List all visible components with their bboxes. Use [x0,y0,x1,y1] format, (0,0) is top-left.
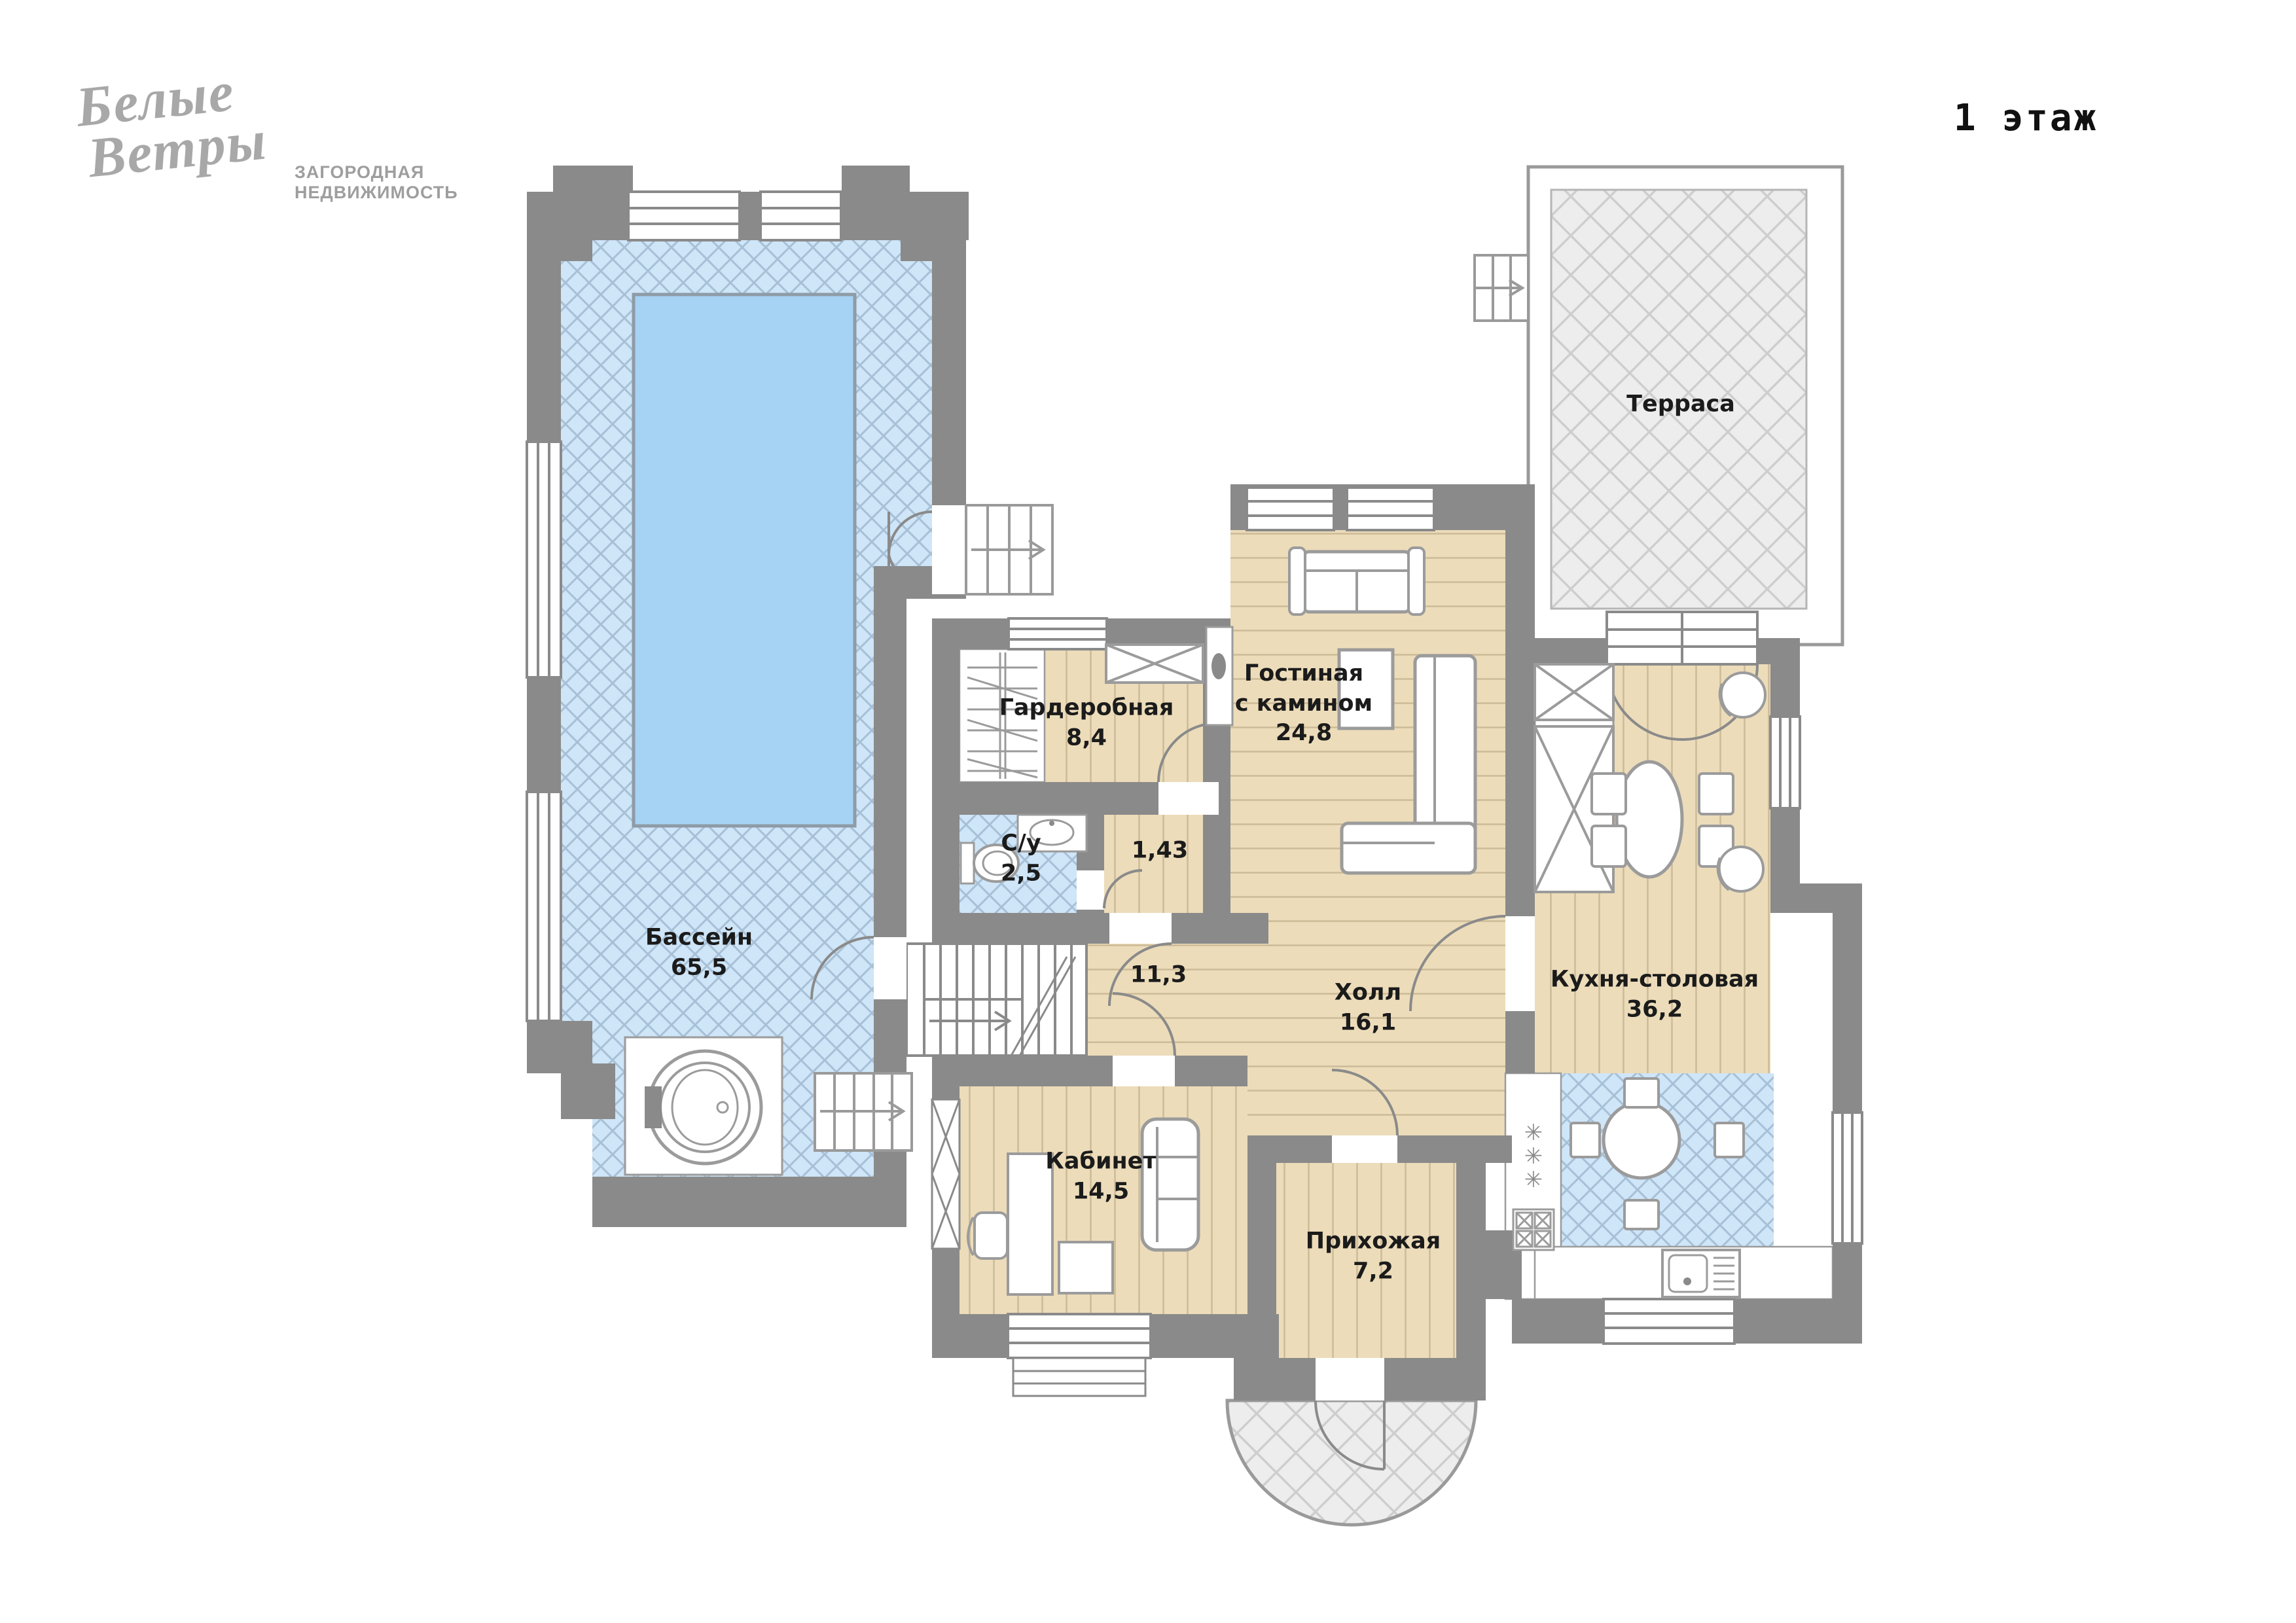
room-label-pool: Бассейн 65,5 [645,923,753,983]
room-label-living: Гостиная с камином 24,8 [1235,659,1372,749]
room-label-hall: Холл 16,1 [1335,978,1401,1038]
side-table-icon [1059,1242,1113,1293]
living-window-1 [1247,488,1334,530]
kitchen-south-window [1604,1299,1734,1344]
fireplace-icon [1206,627,1232,725]
logo-subtitle-line2: НЕДВИЖИМОСТЬ [295,183,458,203]
pool-top-window-1 [628,192,740,240]
kitchen-sink-icon [1662,1250,1740,1297]
room-label-study: Кабинет 14,5 [1045,1147,1156,1207]
room-label-niche: 1,43 [1132,836,1188,866]
kitchen-east-strip [1774,913,1833,1234]
room-label-stair-corridor: 11,3 [1130,960,1187,990]
logo-script: Белые Ветры [74,63,270,185]
logo: Белые Ветры ЗАГОРОДНАЯ НЕДВИЖИМОСТЬ [79,79,445,249]
sofa-icon [1289,548,1424,615]
study-south-window [1008,1314,1151,1396]
stove-icon [1513,1209,1554,1250]
svg-text:✳: ✳ [1524,1120,1543,1146]
pool-left-window-1 [527,442,561,677]
logo-word-2: Ветры [86,114,270,184]
logo-subtitle-line1: ЗАГОРОДНАЯ [295,162,458,183]
room-label-terrace: Терраса [1626,389,1735,419]
entrance-porch [1227,1400,1476,1525]
jacuzzi-icon [625,1037,782,1175]
terrace-steps [1475,255,1528,321]
wardrobe-window [1009,618,1107,649]
living-window-2 [1347,488,1434,530]
kitchen-east-window-1 [1770,717,1800,808]
floor-title: 1 этаж [1954,97,2098,139]
desk-chair-icon [968,1213,1007,1258]
kitchen-east-window-2 [1833,1113,1862,1243]
room-label-entry: Прихожая 7,2 [1306,1227,1441,1287]
study-west-window [932,1099,960,1249]
pool-basin [634,294,855,826]
fridge-icon: ✳ ✳ ✳ [1524,1120,1543,1193]
wardrobe-cabinet-icon [1106,645,1203,683]
room-label-kitchen: Кухня-столовая 36,2 [1551,965,1759,1025]
pool-left-window-2 [527,792,561,1021]
room-label-wardrobe: Гардеробная 8,4 [999,694,1174,753]
svg-text:✳: ✳ [1524,1167,1543,1193]
svg-text:✳: ✳ [1524,1143,1543,1169]
room-label-bathroom: С/у 2,5 [1001,829,1041,889]
pool-top-window-2 [761,192,841,240]
rear-steps [815,1073,912,1150]
logo-subtitle: ЗАГОРОДНАЯ НЕДВИЖИМОСТЬ [295,162,458,203]
floor-plan-page: ✳ ✳ ✳ [0,0,2296,1623]
